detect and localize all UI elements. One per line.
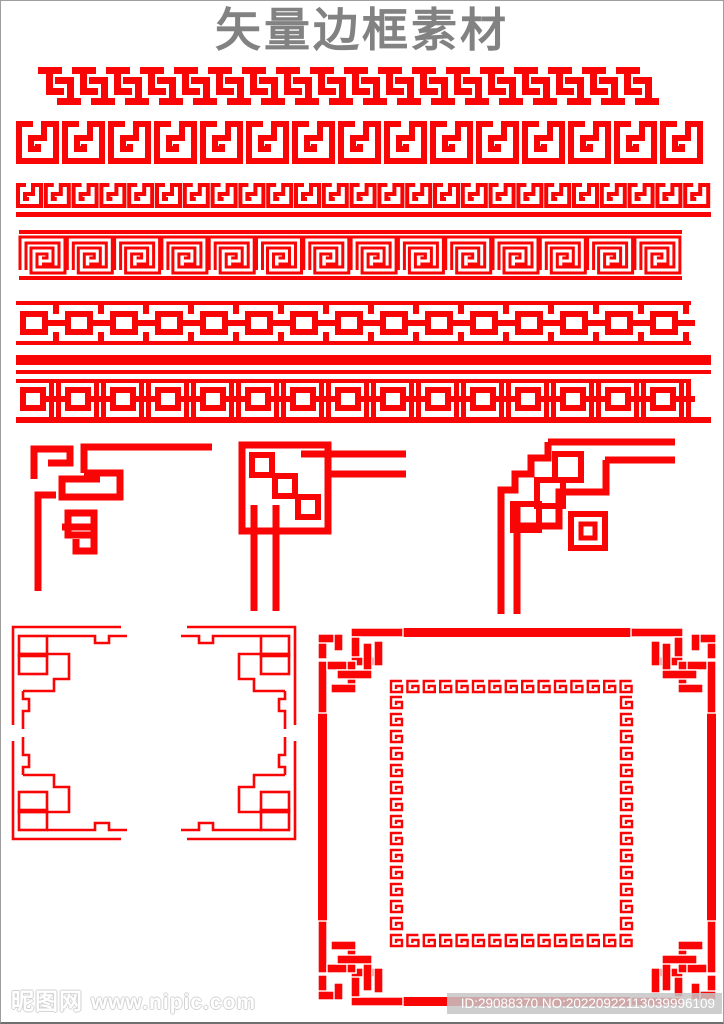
- frame-thick-knot: [318, 628, 716, 1006]
- corner-ornament-squares-diagonal: [242, 445, 406, 611]
- border-row-square-chain-bars: [16, 355, 711, 423]
- frame2-corner-knot-tr: [631, 628, 716, 713]
- border-row-spiral-large: [19, 124, 700, 161]
- border-row-spiral-small: [16, 185, 711, 217]
- frame1-corner-br: [181, 737, 295, 839]
- stock-image-canvas: 矢量边框素材 昵图网www.nipic.com ID:29088370 NO:2…: [0, 0, 724, 1024]
- frame-thin-ornate: [13, 627, 295, 839]
- watermark-logo: 昵图网: [11, 988, 83, 1014]
- frame2-inner-meander: [391, 681, 632, 946]
- border-row-outlined-meander: [19, 230, 682, 280]
- frame1-corner-bl: [13, 737, 127, 839]
- watermark: 昵图网www.nipic.com: [11, 982, 256, 1016]
- border-row-square-chain: [16, 301, 695, 345]
- corner-ornament-stairstep: [501, 442, 675, 614]
- border-row-interlocking-t: [38, 67, 659, 105]
- frame1-corner-tr: [181, 627, 295, 729]
- corner-ornament-hooked: [34, 447, 212, 591]
- frame1-corner-tl: [13, 627, 127, 729]
- watermark-url: www.nipic.com: [91, 991, 256, 1014]
- vector-border-artwork: [1, 1, 724, 1024]
- frame2-corner-knot-bl: [318, 921, 403, 1006]
- id-badge: ID:29088370 NO:20220922113039996109: [447, 993, 722, 1014]
